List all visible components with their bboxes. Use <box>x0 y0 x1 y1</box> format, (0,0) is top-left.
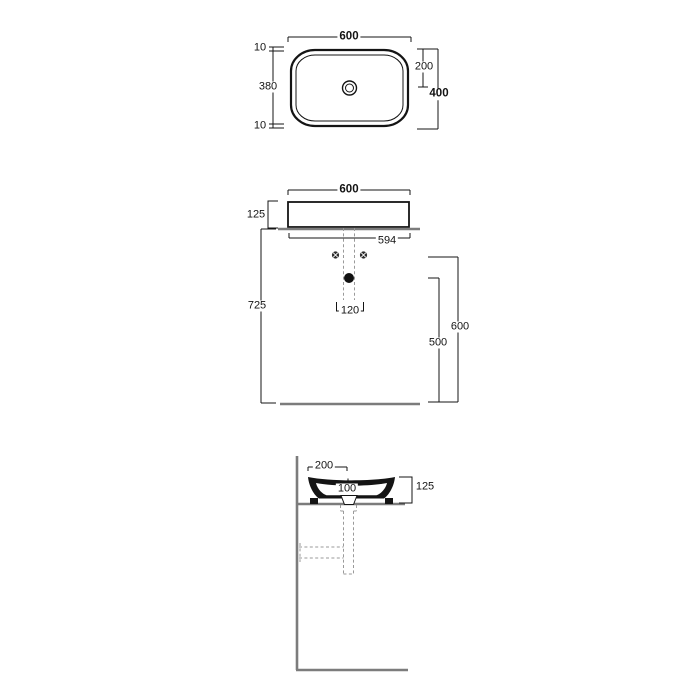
side-drain-center-label: 100 <box>336 484 358 495</box>
front-drain-pipe-dashed <box>344 228 355 300</box>
basin-foot-right <box>385 498 393 504</box>
fixing-screw-icon-right <box>360 251 367 258</box>
top-rim-top-label: 10 <box>252 43 268 54</box>
drain-hole-icon <box>346 84 354 92</box>
front-view <box>261 190 458 404</box>
top-drain-offset-label: 200 <box>413 62 435 73</box>
front-outlet-500-label: 500 <box>427 338 449 349</box>
top-rim-bottom-label: 10 <box>252 121 268 132</box>
front-total-height-label: 725 <box>246 301 268 312</box>
front-counter-width-label: 594 <box>376 236 398 247</box>
front-outlet-600-label: 600 <box>449 322 471 333</box>
top-inner-depth-label: 380 <box>257 82 279 93</box>
front-basin-body <box>288 202 409 227</box>
side-basin-height-dim <box>399 477 412 503</box>
fixing-screw-icon-left <box>332 251 339 258</box>
top-basin-outer-outline <box>291 50 408 126</box>
waste-outlet-icon <box>344 273 354 283</box>
front-basin-height-dim <box>268 201 278 228</box>
front-drain-spacing-label: 120 <box>339 306 361 317</box>
top-basin-inner-outline <box>296 55 403 121</box>
front-total-height-dim <box>261 229 276 403</box>
top-overall-depth-label: 400 <box>427 88 450 100</box>
side-basin-height-label: 125 <box>414 482 436 493</box>
drawing-canvas <box>0 0 700 700</box>
side-rim-label: 200 <box>313 461 335 472</box>
front-basin-height-label: 125 <box>245 210 267 221</box>
front-width-label: 600 <box>337 184 360 196</box>
basin-foot-left <box>310 498 318 504</box>
side-plumbing-dashed <box>299 505 357 574</box>
drain-icon <box>343 81 357 95</box>
top-width-label: 600 <box>337 31 360 43</box>
top-view <box>269 37 438 129</box>
technical-drawing-page: 600 10 380 10 200 400 600 125 594 725 12… <box>0 0 700 700</box>
